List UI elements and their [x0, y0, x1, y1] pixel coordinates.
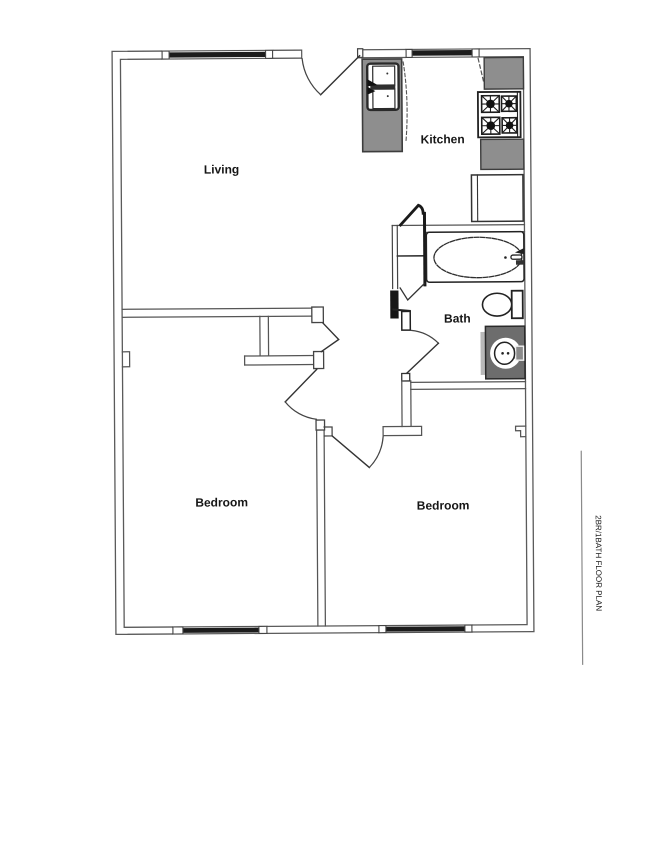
svg-text:Living: Living	[204, 162, 239, 176]
svg-text:2BR/1BATH FLOOR PLAN: 2BR/1BATH FLOOR PLAN	[594, 515, 604, 611]
svg-text:Kitchen: Kitchen	[421, 132, 465, 146]
svg-text:Bedroom: Bedroom	[417, 498, 470, 512]
svg-text:Bath: Bath	[444, 311, 471, 325]
svg-text:Bedroom: Bedroom	[195, 495, 248, 509]
